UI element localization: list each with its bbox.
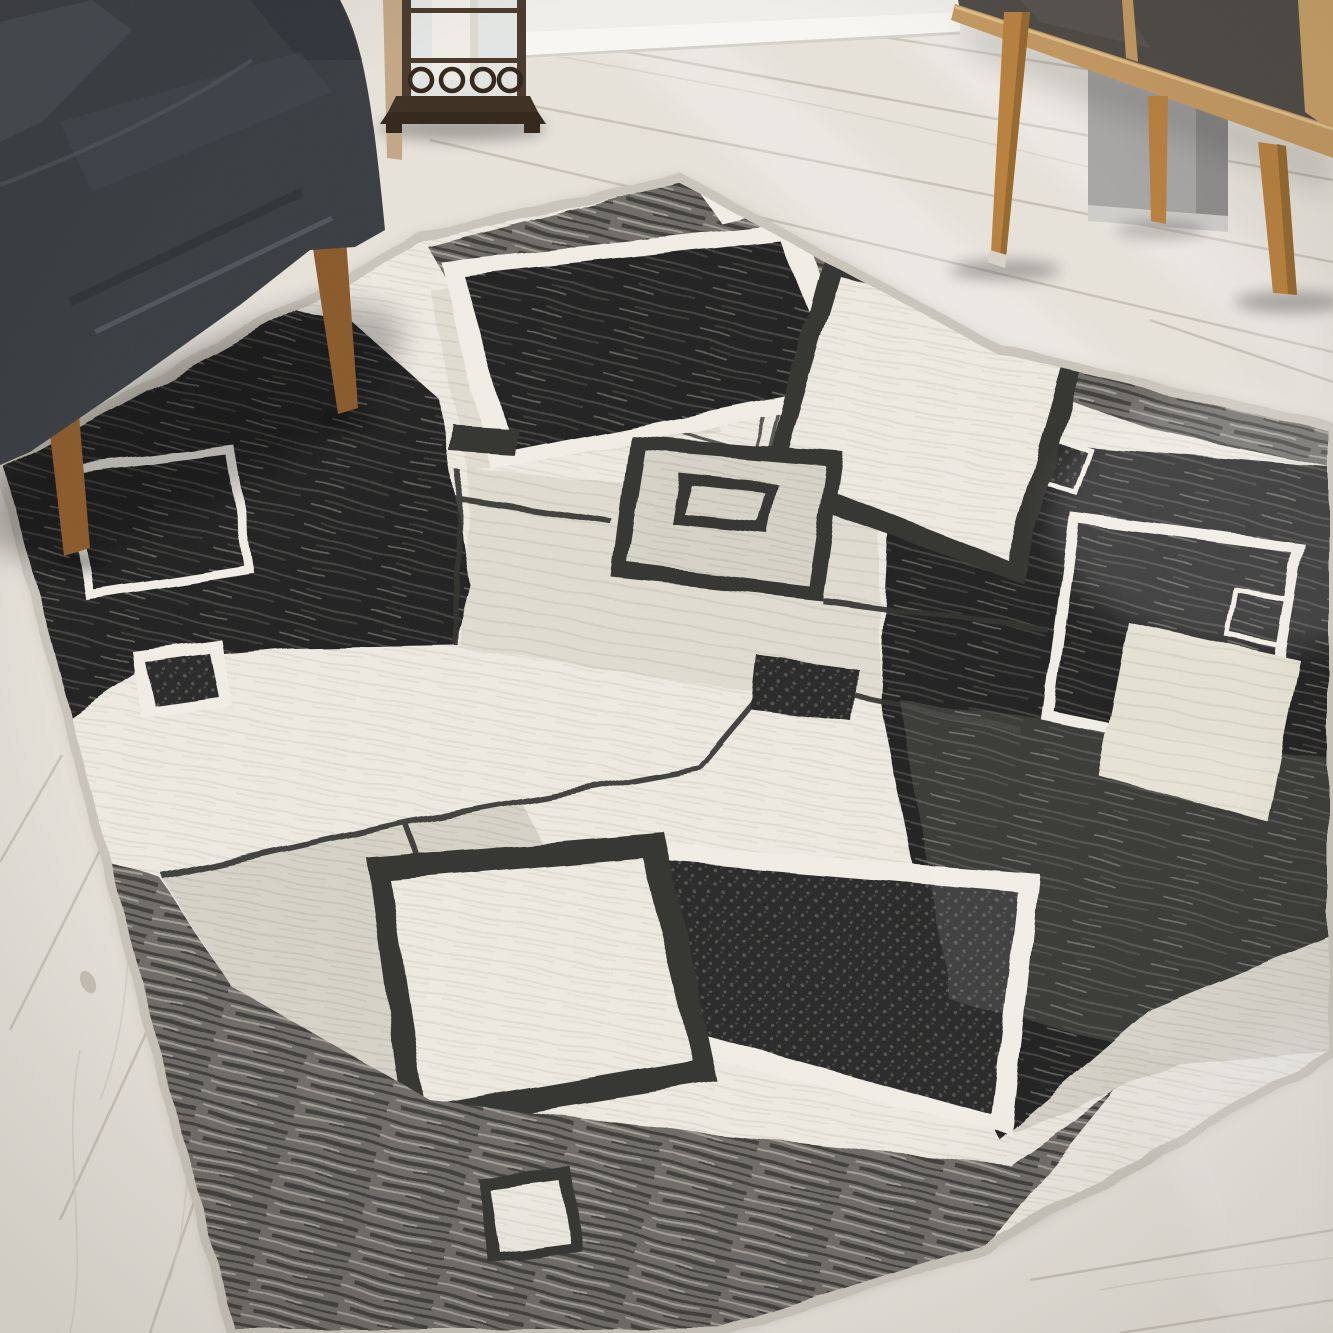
room-photo: Modern geometric area rug in gray, black… [0,0,1333,1333]
scene-canvas: Modern geometric area rug in gray, black… [0,0,1333,1333]
photo-grain [0,0,1333,1333]
